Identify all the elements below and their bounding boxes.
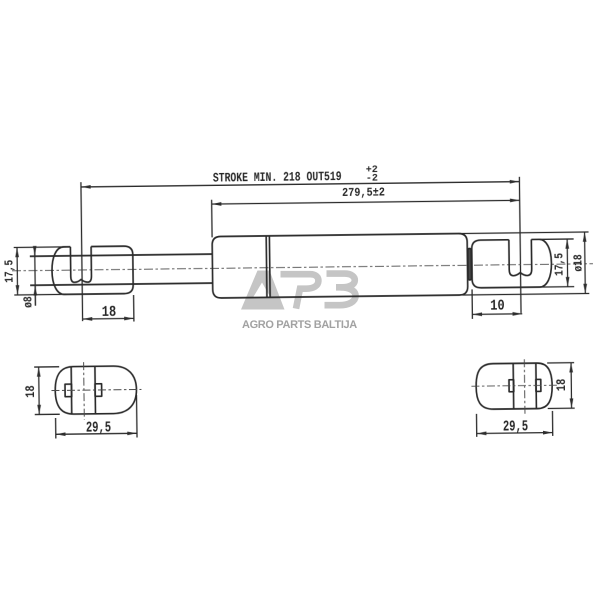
- svg-text:AGRO PARTS BALTIJA: AGRO PARTS BALTIJA: [242, 319, 357, 331]
- svg-text:279,5±2: 279,5±2: [342, 186, 385, 201]
- svg-text:18: 18: [102, 304, 117, 321]
- svg-text:18: 18: [554, 378, 569, 391]
- svg-text:18: 18: [23, 385, 38, 398]
- svg-text:ø18: ø18: [571, 254, 585, 271]
- svg-text:STROKE MIN. 218 OUT519: STROKE MIN. 218 OUT519: [213, 169, 342, 186]
- svg-text:10: 10: [490, 297, 505, 314]
- svg-text:29,5: 29,5: [86, 420, 111, 437]
- svg-text:-2: -2: [366, 174, 378, 185]
- svg-text:17,5: 17,5: [552, 253, 566, 276]
- svg-text:ø8: ø8: [21, 296, 35, 308]
- svg-text:17,5: 17,5: [3, 260, 17, 283]
- svg-text:29,5: 29,5: [503, 418, 528, 435]
